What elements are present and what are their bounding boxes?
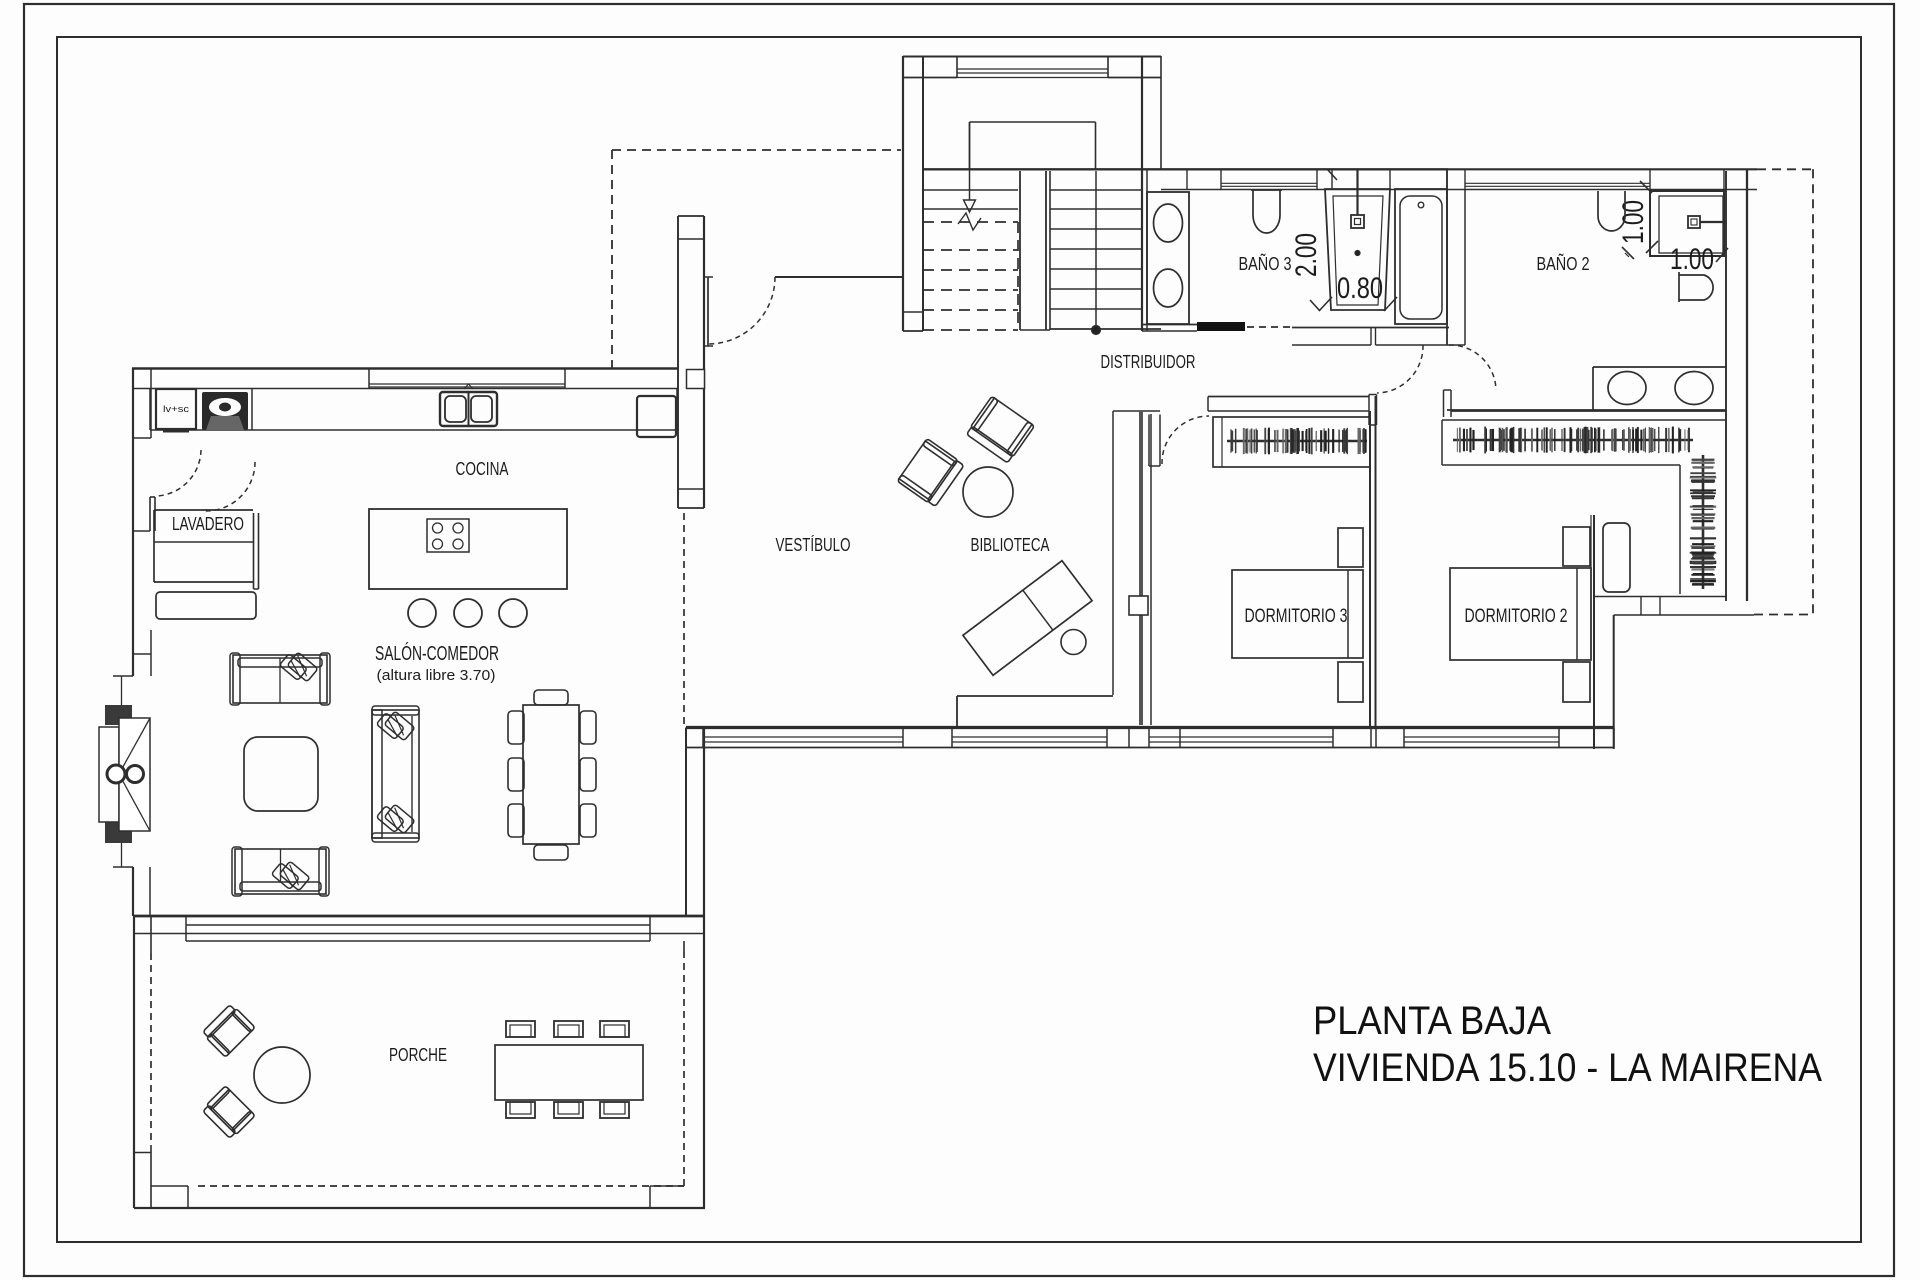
svg-text:COCINA: COCINA bbox=[456, 459, 509, 479]
svg-text:2.00: 2.00 bbox=[1290, 233, 1323, 277]
svg-text:BAÑO 2: BAÑO 2 bbox=[1537, 253, 1590, 274]
svg-text:PORCHE: PORCHE bbox=[389, 1045, 447, 1065]
svg-text:LAVADERO: LAVADERO bbox=[172, 514, 244, 534]
svg-text:SALÓN-COMEDOR: SALÓN-COMEDOR bbox=[375, 642, 499, 665]
svg-text:1.00: 1.00 bbox=[1617, 200, 1650, 244]
svg-text:lv+sc: lv+sc bbox=[163, 404, 190, 414]
svg-text:PLANTA BAJA: PLANTA BAJA bbox=[1313, 999, 1551, 1043]
svg-text:VIVIENDA 15.10 - LA MAIRENA: VIVIENDA 15.10 - LA MAIRENA bbox=[1313, 1046, 1822, 1090]
svg-text:(altura libre 3.70): (altura libre 3.70) bbox=[377, 667, 496, 684]
svg-text:BAÑO 3: BAÑO 3 bbox=[1239, 253, 1292, 274]
svg-text:BIBLIOTECA: BIBLIOTECA bbox=[971, 535, 1050, 555]
svg-text:DORMITORIO 2: DORMITORIO 2 bbox=[1465, 606, 1568, 627]
svg-text:VESTÍBULO: VESTÍBULO bbox=[776, 535, 851, 555]
svg-text:1.00: 1.00 bbox=[1670, 243, 1714, 276]
svg-text:DORMITORIO 3: DORMITORIO 3 bbox=[1245, 606, 1348, 627]
svg-text:0.80: 0.80 bbox=[1337, 272, 1383, 305]
svg-text:DISTRIBUIDOR: DISTRIBUIDOR bbox=[1101, 352, 1196, 372]
